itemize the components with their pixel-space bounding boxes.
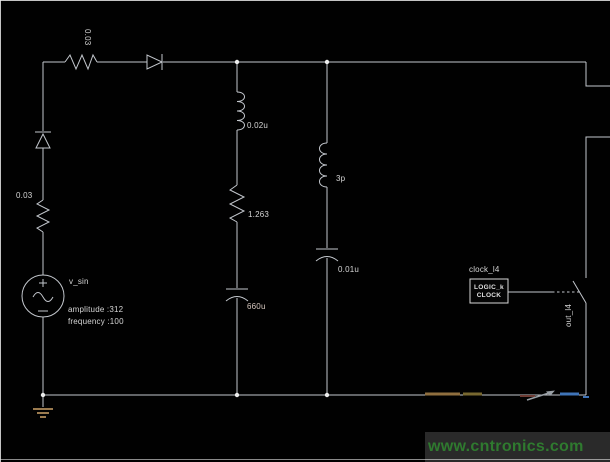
schematic-canvas: 0.03 0.03 v_sin amplitude :312 frequency… (0, 0, 610, 462)
input-resistor[interactable] (37, 200, 49, 232)
mid-resistor-value: 1.263 (248, 210, 269, 219)
wire-exit-upper (586, 62, 610, 86)
junction-dot (235, 393, 239, 397)
clock-title: clock_l4 (469, 265, 500, 274)
mid-resistor[interactable] (230, 185, 244, 222)
junction-dot (325, 60, 329, 64)
series-resistor-value: 0.03 (83, 29, 92, 45)
series-diode[interactable] (147, 54, 162, 70)
clock-box-label[interactable]: LOGIC_k CLOCK (470, 279, 508, 303)
wire-return-upper (586, 137, 610, 278)
canvas-edge-left (0, 0, 1, 462)
wire-net[interactable] (43, 62, 610, 395)
series-resistor[interactable] (65, 55, 97, 69)
source-amplitude: amplitude :312 (68, 305, 123, 314)
input-resistor-value: 0.03 (16, 191, 32, 200)
plus-sign-icon (39, 279, 47, 287)
ground-icon[interactable] (33, 395, 53, 417)
junction-dot (41, 393, 45, 397)
sine-wave-icon (33, 293, 53, 302)
watermark-text: www.cntronics.com (428, 438, 584, 455)
clock-box-line2: CLOCK (477, 292, 502, 299)
junction-dot (235, 60, 239, 64)
source-name: v_sin (69, 277, 89, 286)
canvas-edge-top (0, 0, 610, 1)
ac-voltage-source[interactable] (22, 275, 64, 317)
watermark: www.cntronics.com (425, 432, 610, 462)
right-inductor[interactable] (320, 143, 328, 187)
source-frequency: frequency :100 (68, 317, 124, 326)
right-inductor-value: 3p (336, 174, 345, 183)
clock-switch[interactable] (573, 281, 586, 303)
mid-capacitor-value: 660u (247, 302, 266, 311)
right-capacitor-value: 0.01u (338, 265, 359, 274)
schematic-drawing (0, 0, 610, 462)
junction-dots (41, 60, 329, 397)
input-diode[interactable] (35, 132, 51, 148)
clock-box-line1: LOGIC_k (474, 284, 504, 291)
switch-output-label: out_l4 (564, 304, 573, 327)
canvas-edge-bottom (0, 459, 610, 460)
junction-dot (325, 393, 329, 397)
mid-inductor-value: 0.02u (247, 121, 268, 130)
mid-inductor[interactable] (237, 92, 245, 130)
